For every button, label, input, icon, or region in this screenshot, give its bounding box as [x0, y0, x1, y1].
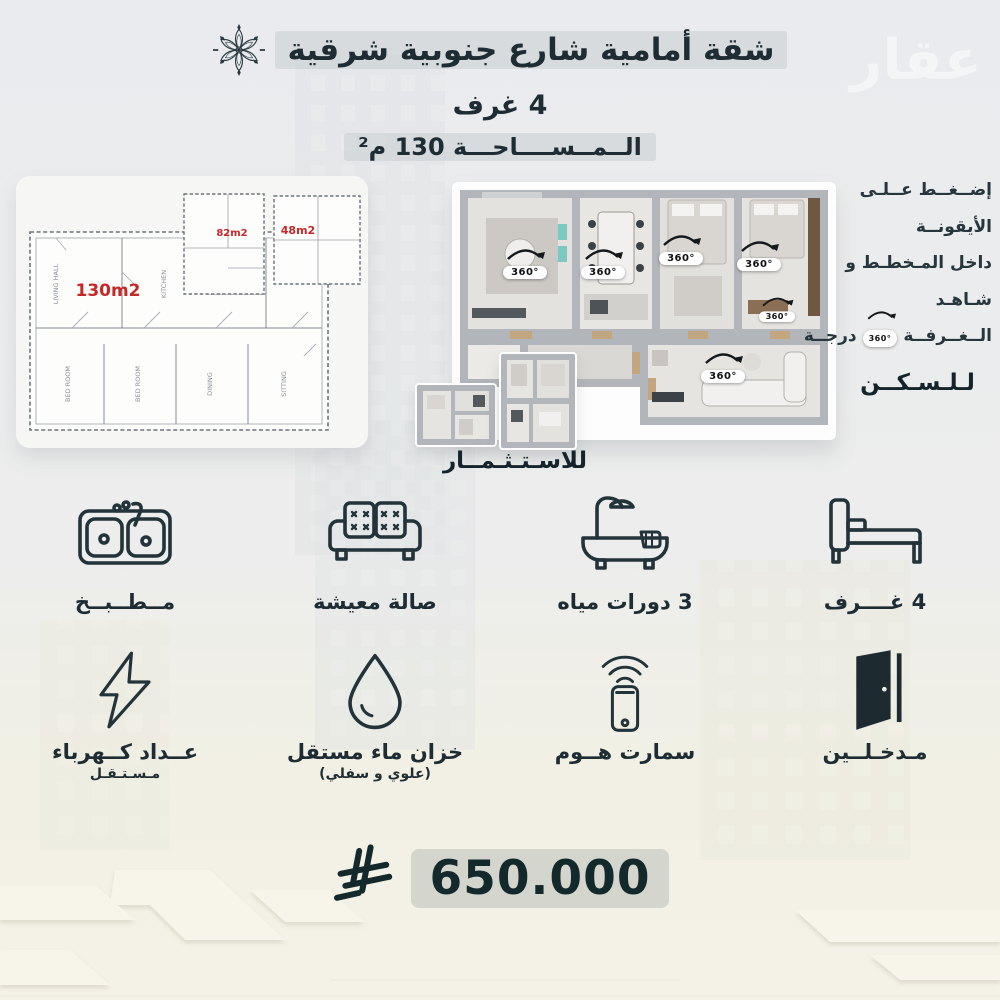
- feature-electricity-meter: عــداد كــهرباء مـسـتـقـل: [0, 644, 250, 782]
- water-drop-icon: [336, 644, 414, 736]
- badge-360-bedroom-1[interactable]: 360°: [658, 232, 704, 265]
- room-label: KITCHEN: [160, 270, 168, 298]
- badge-360-living[interactable]: 360°: [502, 246, 548, 279]
- instruction-line-3-end: درجــة: [804, 318, 857, 355]
- area-label-small: 48m2: [281, 224, 315, 237]
- floorplan-3d-small-b: [499, 352, 577, 450]
- flower-ornament-icon: [213, 24, 265, 76]
- room-label: BED ROOM: [64, 366, 72, 402]
- area-label-main: 130m2: [75, 281, 140, 301]
- instruction-line-2: داخل المـخطـط و شـاهـد: [810, 245, 992, 318]
- feature-entrances: مـدخـلــين: [750, 644, 1000, 782]
- saudi-riyal-symbol: [331, 842, 397, 914]
- area-line: الــمــســــاحـــة 130 م²: [344, 133, 656, 161]
- instruction-line-1: إضــغــط عــلـى الأيقونــة: [810, 172, 992, 245]
- blueprint-panel: 130m2 82m2 48m2 LIVING HALL KITCHEN BED …: [16, 176, 368, 448]
- room-label: LIVING HALL: [52, 263, 60, 304]
- blueprint-drawing: 130m2 82m2 48m2 LIVING HALL KITCHEN BED …: [16, 176, 368, 448]
- page-title: شقة أمامية شارع جنوبية شرقية: [275, 31, 786, 69]
- room-label: BED ROOM: [134, 366, 142, 402]
- badge-360-bedroom-2[interactable]: 360°: [736, 238, 782, 271]
- feature-bathrooms: 3 دورات مياه: [500, 478, 750, 616]
- instruction-line-3-start: الــغــرفــة: [903, 318, 992, 355]
- bed-icon: [819, 478, 931, 586]
- badge-360-dining[interactable]: 360°: [580, 246, 626, 279]
- badge-360-bathroom[interactable]: 360°: [758, 295, 796, 322]
- bathtub-icon: [573, 478, 677, 586]
- smart-home-icon: [583, 644, 667, 736]
- feature-rooms: 4 غــــرف: [750, 478, 1000, 616]
- instruction-text: إضــغــط عــلـى الأيقونــة داخل المـخطـط…: [810, 172, 992, 355]
- badge-360-lounge[interactable]: 360°: [700, 350, 746, 383]
- room-label: DINING: [206, 372, 214, 396]
- feature-water-tank: خزان ماء مستقل (علوي و سفلي): [250, 644, 500, 782]
- door-icon: [836, 644, 914, 736]
- features-grid: مــطــبــخ صالة معيشة: [0, 478, 1000, 782]
- price-amount: 650.000: [411, 849, 668, 908]
- feature-living-room: صالة معيشة: [250, 478, 500, 616]
- floorplan-3d-small-a: [415, 383, 497, 447]
- room-label: SITTING: [280, 371, 288, 397]
- header: شقة أمامية شارع جنوبية شرقية: [0, 24, 1000, 161]
- rooms-count-line: 4 غرف: [0, 90, 1000, 121]
- kitchen-sink-icon: [75, 478, 175, 586]
- residence-label: لـلـسـكــن: [845, 370, 990, 396]
- investment-label: للاسـتـثـمــار: [420, 448, 610, 474]
- area-label-mid: 82m2: [216, 228, 247, 239]
- price-section: 650.000: [0, 842, 1000, 914]
- feature-smart-home: سمارت هــوم: [500, 644, 750, 782]
- sofa-icon: [319, 478, 431, 586]
- lightning-icon: [85, 644, 165, 736]
- badge-360-inline: 360°: [863, 318, 898, 355]
- feature-kitchen: مــطــبــخ: [0, 478, 250, 616]
